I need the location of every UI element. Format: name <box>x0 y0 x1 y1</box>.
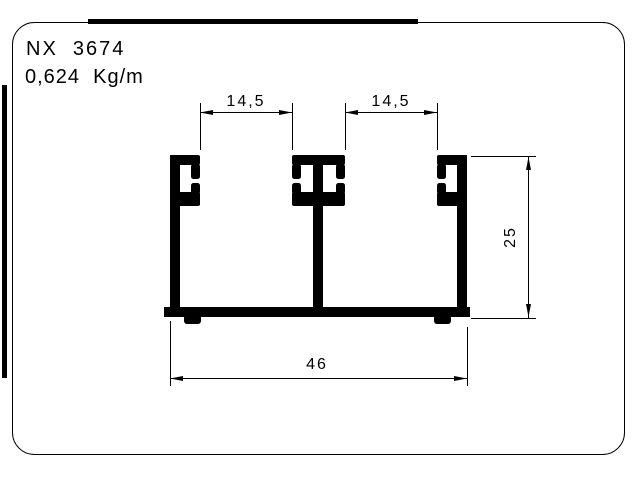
dimension-label-groove-left: 14,5 <box>212 93 280 111</box>
profile-right-wall <box>437 155 467 317</box>
dimension-arrowheads <box>170 110 531 381</box>
profile-left-wall <box>170 155 200 317</box>
dimension-line-width <box>170 321 468 386</box>
profile-foot-right <box>434 315 451 324</box>
profile-center-divider <box>292 155 345 317</box>
dimension-lines <box>170 103 536 386</box>
scan-artifact-left <box>2 85 7 378</box>
profile-weight: 0,624 Kg/m <box>25 66 144 89</box>
dimension-label-width: 46 <box>287 356 347 374</box>
profile-foot-left <box>184 315 201 324</box>
scan-artifact-top <box>88 19 418 24</box>
dimension-label-height: 25 <box>502 207 520 267</box>
dimension-label-groove-right: 14,5 <box>357 93 425 111</box>
profile-base <box>164 307 470 324</box>
profile-geometry <box>164 155 470 324</box>
profile-code: NX 3674 <box>26 38 125 61</box>
drawing-sheet: NX 3674 0,624 Kg/m 14,5 14,5 25 46 <box>0 0 640 480</box>
